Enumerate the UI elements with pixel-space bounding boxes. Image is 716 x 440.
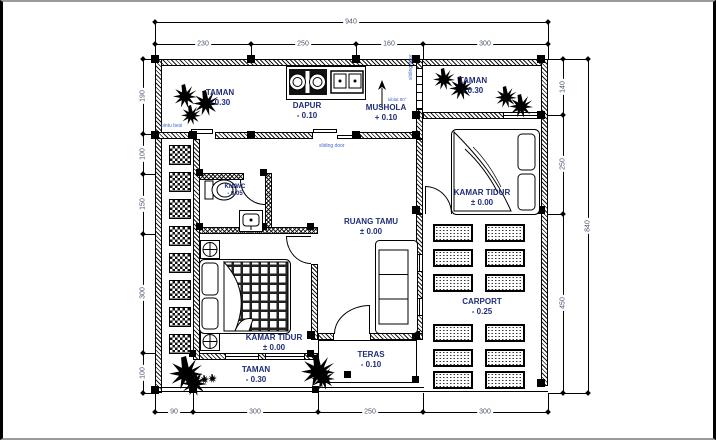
wall-livingroom-front xyxy=(318,333,334,340)
dim-label-right-overall: 840 xyxy=(585,218,592,234)
dimension-tick xyxy=(545,409,551,415)
dim-label-right: 450 xyxy=(560,295,567,311)
door-leaf xyxy=(425,186,426,214)
extension-line xyxy=(548,59,588,60)
column xyxy=(151,386,159,394)
annotation-kiblat: kiblat 80° xyxy=(388,97,407,102)
plant-icon xyxy=(181,105,201,125)
room-elevation: - 0.10 xyxy=(357,360,384,370)
annotation-mushola-door: sliding door xyxy=(408,54,414,80)
dimension-tick xyxy=(248,41,254,47)
room-label-kamar-tidur-kanan: KAMAR TIDUR± 0.00 xyxy=(454,188,510,209)
column xyxy=(247,55,255,63)
room-name: TAMAN xyxy=(206,88,234,98)
dimension-tick xyxy=(420,409,426,415)
column xyxy=(412,206,420,214)
dim-label-left: 100 xyxy=(140,365,147,381)
column xyxy=(352,131,360,139)
column xyxy=(344,371,351,378)
dim-label-right: 250 xyxy=(560,156,567,172)
dim-label-bottom: 250 xyxy=(362,409,378,416)
column xyxy=(307,223,314,230)
room-elevation: - 0.30 xyxy=(459,86,487,96)
dim-label-bottom: 90 xyxy=(168,409,180,416)
carport-paver xyxy=(485,371,525,389)
room-elevation: ± 0.00 xyxy=(344,227,398,237)
room-elevation: - 0.25 xyxy=(462,307,502,317)
room-label-taman-top-left: TAMAN- 0.30 xyxy=(206,88,234,109)
door-leaf xyxy=(286,236,311,237)
carport-paver xyxy=(433,274,473,292)
grass-block-paver xyxy=(169,280,191,300)
room-label-kamar-tidur-kiri: KAMAR TIDUR± 0.00 xyxy=(246,333,302,354)
dim-label-top-overall: 940 xyxy=(343,19,359,26)
column xyxy=(196,223,203,230)
sofa-icon xyxy=(375,240,418,334)
grass-block-paver xyxy=(169,253,191,273)
dimension-tick xyxy=(190,409,196,415)
room-label-kmwc: KM/WC- 0.05 xyxy=(225,184,246,198)
room-elevation: ± 0.00 xyxy=(454,198,510,208)
grass-block-paver xyxy=(169,172,191,192)
column xyxy=(412,376,419,383)
plant-icon xyxy=(509,94,533,118)
grass-block-paver xyxy=(169,307,191,327)
dim-label-top: 160 xyxy=(381,41,397,48)
wall-bedroom-left-right xyxy=(311,264,318,340)
column xyxy=(537,379,545,387)
dim-label-left: 150 xyxy=(140,196,147,212)
dimension-tick xyxy=(315,409,321,415)
room-label-teras: TERAS- 0.10 xyxy=(357,350,384,371)
carport-paver xyxy=(433,249,473,267)
room-label-dapur: DAPUR- 0.10 xyxy=(293,101,321,122)
room-name: KM/WC xyxy=(225,184,246,191)
room-name: TAMAN xyxy=(242,365,270,375)
carport-paver xyxy=(433,224,473,242)
room-elevation: - 0.10 xyxy=(293,111,321,121)
dimension-tick xyxy=(140,131,146,137)
dimension-tick xyxy=(353,41,359,47)
column xyxy=(537,55,545,63)
dim-label-left: 300 xyxy=(140,285,147,301)
dim-label-bottom: 300 xyxy=(477,409,493,416)
room-elevation: ± 0.00 xyxy=(246,343,302,353)
carport-paver xyxy=(433,371,473,389)
window xyxy=(265,353,305,360)
dimension-tick xyxy=(140,56,146,62)
column xyxy=(189,131,197,139)
annotation-pintu-besi: pintu besi xyxy=(161,123,182,129)
dimension-tick xyxy=(560,112,566,118)
carport-paver xyxy=(485,349,525,367)
bush-icon xyxy=(311,366,335,390)
carport-paver xyxy=(485,224,525,242)
dimension-tick xyxy=(560,56,566,62)
column xyxy=(352,55,360,63)
column xyxy=(196,169,203,176)
room-name: TAMAN xyxy=(459,76,487,86)
carport-paver xyxy=(433,349,473,367)
side-table-icon xyxy=(200,240,220,259)
kitchen-counter-icon xyxy=(286,66,366,102)
room-name: CARPORT xyxy=(462,297,502,307)
dimension-tick xyxy=(585,56,591,62)
dimension-tick xyxy=(545,41,551,47)
dim-label-left: 190 xyxy=(140,88,147,104)
wall-bedroom-right-left xyxy=(416,139,423,214)
grass-block-paver xyxy=(169,334,191,354)
side-table-icon xyxy=(200,332,220,351)
room-elevation: + 0.10 xyxy=(366,113,406,123)
room-name: KAMAR TIDUR xyxy=(454,188,510,198)
room-label-carport: CARPORT- 0.25 xyxy=(462,297,502,318)
dimension-tick xyxy=(140,350,146,356)
sliding-door-leaf xyxy=(313,129,337,133)
dimension-tick xyxy=(585,390,591,396)
dim-line-left xyxy=(143,59,144,393)
fence-wall-left xyxy=(155,59,162,393)
room-name: TERAS xyxy=(357,350,384,360)
door-leaf xyxy=(369,305,370,334)
extension-line xyxy=(548,393,588,394)
dim-label-top: 230 xyxy=(195,41,211,48)
dimension-tick xyxy=(152,41,158,47)
dimension-tick xyxy=(560,390,566,396)
wall-segment xyxy=(215,132,313,139)
sink-icon xyxy=(239,210,263,232)
annotation-sliding-door: sliding door xyxy=(319,143,345,149)
room-name: DAPUR xyxy=(293,101,321,111)
room-label-taman-top-right: TAMAN- 0.30 xyxy=(459,76,487,97)
dimension-tick xyxy=(140,390,146,396)
dimension-tick xyxy=(545,19,551,25)
grass-block-paver xyxy=(169,145,191,165)
dim-label-top: 250 xyxy=(295,41,311,48)
dimension-tick xyxy=(560,211,566,217)
room-elevation: - 0.30 xyxy=(242,375,270,385)
door-arc xyxy=(425,186,452,214)
room-label-ruang-tamu: RUANG TAMU± 0.00 xyxy=(344,217,398,238)
room-label-mushola: MUSHOLA+ 0.10 xyxy=(366,103,406,124)
floor-plan-canvas: 940 230 250 160 300 190 100 150 300 100 … xyxy=(0,0,716,440)
dim-label-bottom: 300 xyxy=(247,409,263,416)
column xyxy=(151,55,159,63)
grass-block-paver xyxy=(169,199,191,219)
column xyxy=(260,169,267,176)
window xyxy=(225,353,259,360)
column xyxy=(151,131,159,139)
fence-wall-right xyxy=(541,59,548,386)
room-elevation: - 0.05 xyxy=(225,191,246,198)
room-name: KAMAR TIDUR xyxy=(246,333,302,343)
plant-icon xyxy=(208,374,217,383)
carport-paver xyxy=(433,324,473,342)
dim-label-right: 140 xyxy=(560,79,567,95)
boundary-line-bottom xyxy=(155,391,548,392)
dimension-tick xyxy=(140,171,146,177)
wall-segment xyxy=(155,132,189,139)
column xyxy=(412,131,420,139)
column xyxy=(537,111,545,119)
dimension-tick xyxy=(140,231,146,237)
bed-icon xyxy=(199,259,291,334)
carport-paver xyxy=(485,274,525,292)
carport-paver xyxy=(485,324,525,342)
window-mushola xyxy=(416,68,423,110)
carport-paver xyxy=(485,249,525,267)
dim-label-left: 100 xyxy=(140,146,147,162)
dim-label-top: 300 xyxy=(477,41,493,48)
column xyxy=(247,131,255,139)
dimension-tick xyxy=(152,409,158,415)
door-arc xyxy=(334,305,370,334)
grass-block-paver xyxy=(169,226,191,246)
room-name: RUANG TAMU xyxy=(344,217,398,227)
dim-line-right-inner xyxy=(563,59,564,393)
room-elevation: - 0.30 xyxy=(206,98,234,108)
room-name: MUSHOLA xyxy=(366,103,406,113)
column xyxy=(412,111,420,119)
dimension-tick xyxy=(420,41,426,47)
dimension-tick xyxy=(152,19,158,25)
room-label-taman-bawah: TAMAN- 0.30 xyxy=(242,365,270,386)
column xyxy=(307,331,315,339)
